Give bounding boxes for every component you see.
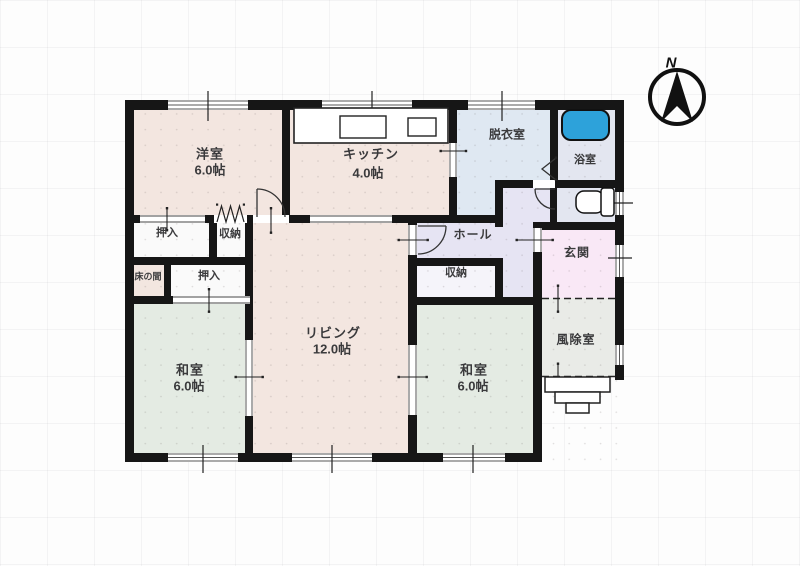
- label-kitchen: キッチン: [343, 144, 399, 163]
- label-closet-1: 押入: [156, 224, 178, 240]
- label-japanese-room-1-size: 6.0帖: [173, 376, 204, 395]
- opening-kitchen-living: [310, 215, 392, 223]
- kitchen-counter-icon: [294, 108, 448, 143]
- label-tokonoma: 床の間: [134, 270, 161, 283]
- label-dressing-room: 脱衣室: [489, 126, 525, 143]
- label-living-size: 12.0帖: [313, 339, 351, 358]
- floorplan-canvas: 洋室 6.0帖 キッチン 4.0帖 脱衣室 浴室 押入 収納 床の間 押入 ホー…: [0, 0, 800, 566]
- north-arrow-icon: [661, 71, 693, 122]
- label-storage-1: 収納: [219, 225, 241, 241]
- wall-outer-right: [615, 100, 624, 380]
- toilet-icon: [576, 188, 614, 216]
- label-japanese-room-2-size: 6.0帖: [457, 376, 488, 395]
- label-entrance: 玄関: [564, 244, 590, 261]
- compass-north-label: N: [666, 55, 677, 72]
- sink-icon: [340, 116, 386, 138]
- floorplan-drawing: [0, 0, 800, 566]
- opening-toilet-door: [533, 180, 555, 188]
- wall-outer-left: [125, 100, 134, 462]
- label-hall: ホール: [453, 226, 492, 243]
- compass: [650, 70, 704, 124]
- label-closet-2: 押入: [198, 267, 220, 283]
- label-western-room-size: 6.0帖: [194, 160, 225, 179]
- label-bath: 浴室: [574, 151, 596, 167]
- label-windbreak: 風除室: [556, 331, 595, 348]
- label-storage-2: 収納: [445, 264, 467, 280]
- label-kitchen-size: 4.0帖: [352, 163, 383, 182]
- stove-icon: [408, 118, 436, 136]
- bathtub-icon: [562, 110, 609, 140]
- wall-entrance-left: [533, 222, 542, 462]
- window-right-windbreak: [615, 345, 624, 365]
